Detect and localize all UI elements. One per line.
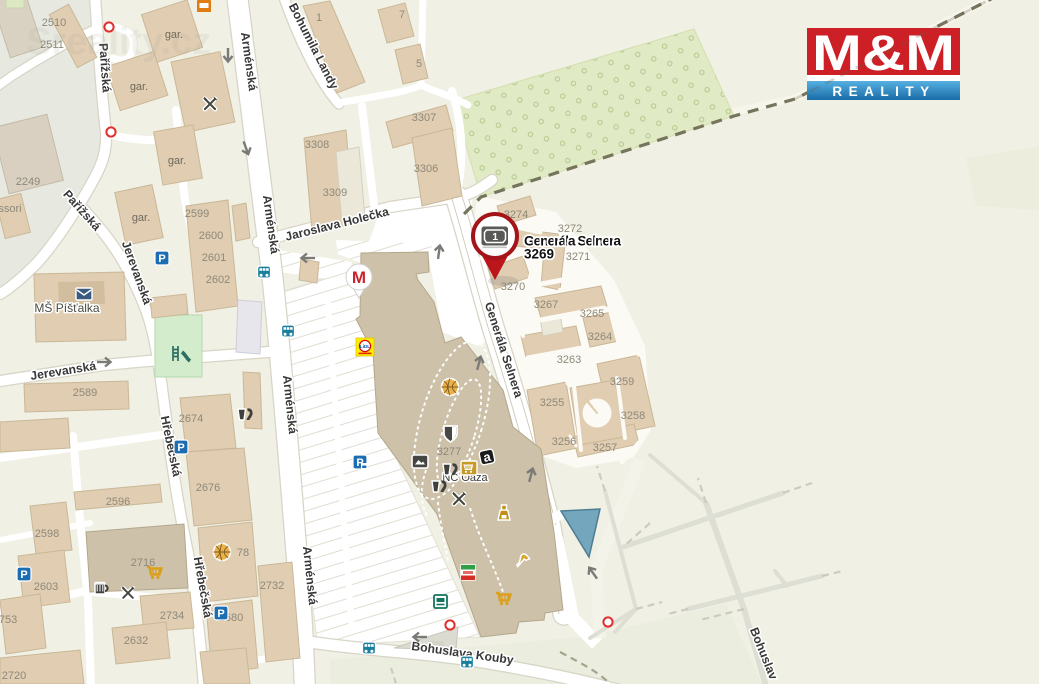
- svg-text:7: 7: [399, 9, 405, 21]
- svg-text:gar.: gar.: [168, 155, 186, 167]
- svg-text:1: 1: [492, 231, 498, 243]
- svg-text:ssori: ssori: [0, 203, 22, 215]
- svg-text:3257: 3257: [593, 442, 617, 454]
- svg-text:2716: 2716: [131, 557, 155, 569]
- svg-text:2674: 2674: [179, 413, 203, 425]
- svg-text:2734: 2734: [160, 610, 184, 622]
- svg-text:gar.: gar.: [132, 212, 150, 224]
- svg-text:3265: 3265: [580, 308, 604, 320]
- svg-text:3267: 3267: [534, 299, 558, 311]
- svg-text:P: P: [177, 442, 184, 454]
- svg-text:Sreality.cz: Sreality.cz: [26, 21, 211, 63]
- svg-text:P: P: [158, 253, 165, 265]
- svg-text:3306: 3306: [414, 163, 438, 175]
- svg-text:3263: 3263: [557, 354, 581, 366]
- svg-text:3258: 3258: [621, 410, 645, 422]
- svg-text:2720: 2720: [2, 670, 26, 682]
- svg-text:gar.: gar.: [130, 81, 148, 93]
- svg-text:P: P: [20, 569, 27, 581]
- svg-text:3259: 3259: [610, 376, 634, 388]
- svg-text:3264: 3264: [588, 331, 612, 343]
- svg-text:3255: 3255: [540, 397, 564, 409]
- svg-text:3277: 3277: [437, 446, 461, 458]
- svg-text:M&M: M&M: [812, 25, 955, 81]
- svg-text:3308: 3308: [305, 139, 329, 151]
- svg-text:2676: 2676: [196, 482, 220, 494]
- svg-text:3307: 3307: [412, 112, 436, 124]
- svg-text:2598: 2598: [35, 528, 59, 540]
- svg-text:78: 78: [237, 547, 249, 559]
- svg-text:2600: 2600: [199, 230, 223, 242]
- svg-text:2632: 2632: [124, 635, 148, 647]
- svg-text:MŠ Píšťalka: MŠ Píšťalka: [34, 300, 100, 315]
- svg-text:2601: 2601: [202, 252, 226, 264]
- svg-text:LiDL: LiDL: [360, 344, 370, 349]
- svg-text:2249: 2249: [16, 176, 40, 188]
- svg-text:2599: 2599: [185, 208, 209, 220]
- svg-text:3309: 3309: [323, 187, 347, 199]
- svg-text:REALITY: REALITY: [832, 84, 935, 99]
- svg-text:5: 5: [416, 58, 422, 70]
- svg-text:2589: 2589: [73, 387, 97, 399]
- svg-text:P: P: [217, 608, 224, 620]
- svg-text:3271: 3271: [566, 251, 590, 263]
- svg-text:3256: 3256: [552, 436, 576, 448]
- svg-text:2732: 2732: [260, 580, 284, 592]
- svg-text:1: 1: [316, 12, 322, 24]
- svg-text:753: 753: [0, 614, 17, 626]
- svg-text:M: M: [352, 268, 366, 287]
- svg-text:2596: 2596: [106, 496, 130, 508]
- svg-text:3269: 3269: [524, 247, 554, 262]
- svg-text:2602: 2602: [206, 274, 230, 286]
- svg-text:2603: 2603: [34, 581, 58, 593]
